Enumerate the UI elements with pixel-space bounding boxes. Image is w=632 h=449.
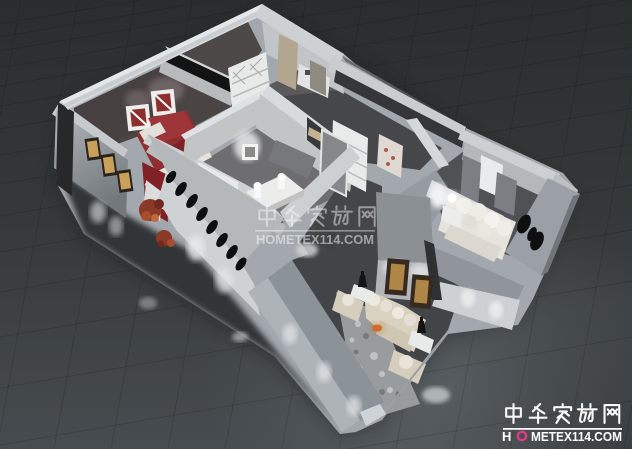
svg-text:H: H [502, 429, 511, 444]
svg-text:METEX114.COM: METEX114.COM [531, 429, 622, 444]
svg-text:HOMETEX114.COM: HOMETEX114.COM [256, 233, 374, 247]
